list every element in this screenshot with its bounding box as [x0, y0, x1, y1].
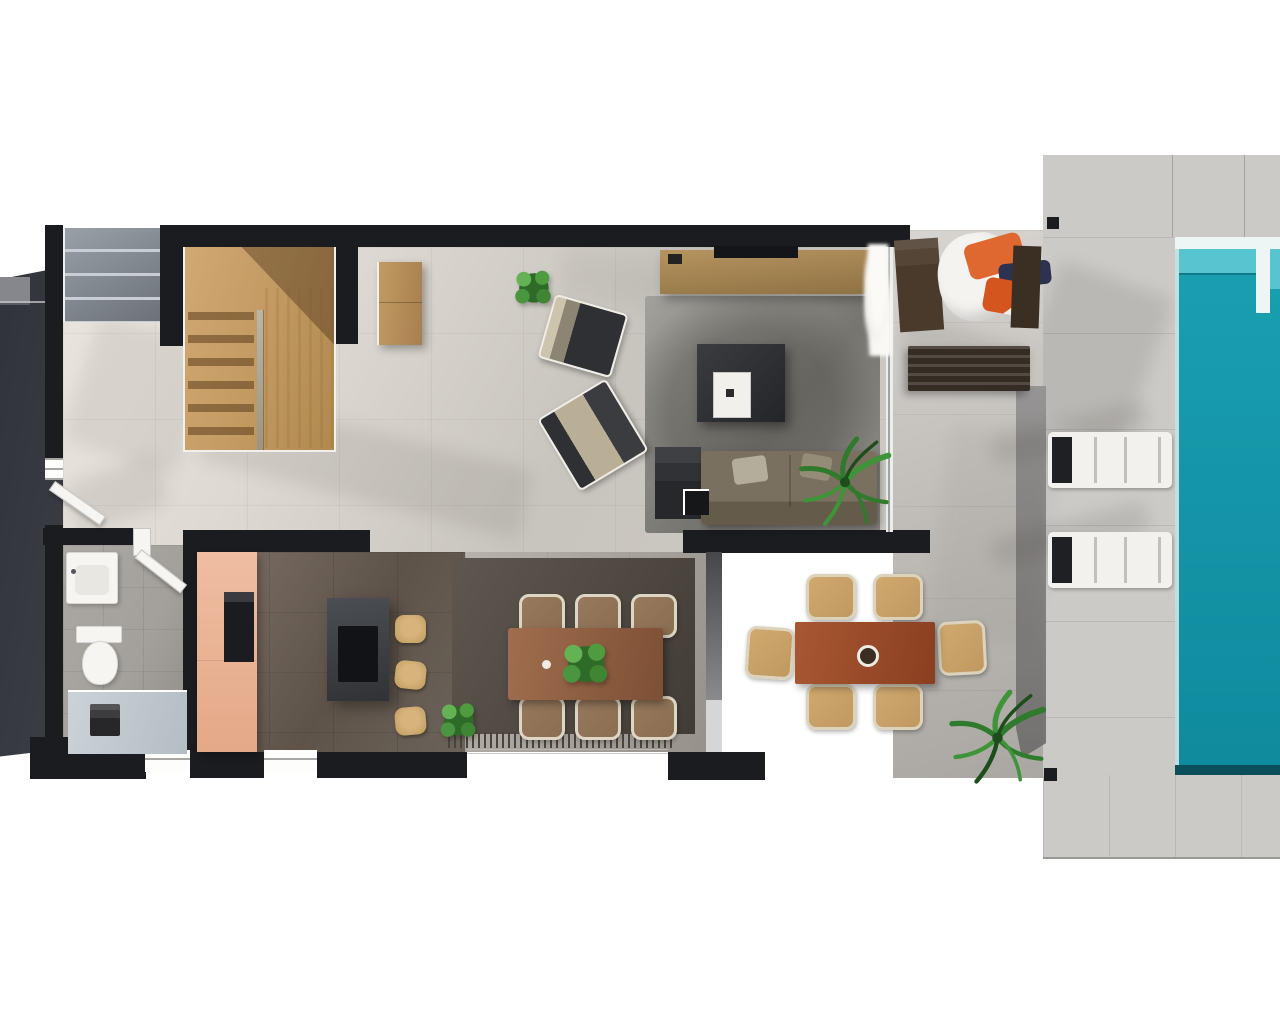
stair-divider: [257, 310, 263, 450]
console-decor: [668, 254, 682, 264]
dining-glass-wall: [706, 700, 722, 752]
outdoor-chair: [806, 574, 856, 620]
driveway-edge-line: [0, 301, 46, 303]
tray-item: [726, 389, 734, 397]
column-marker-top: [1047, 217, 1059, 229]
side-tray: [683, 489, 709, 515]
dining-chair: [631, 696, 677, 740]
lounger-seam: [1094, 537, 1097, 583]
floor-plan-render: [0, 0, 1280, 1024]
top-wall: [160, 225, 910, 247]
sofa-pillow: [731, 455, 768, 485]
bar-stool: [395, 615, 426, 643]
sliding-door-track: [467, 746, 668, 756]
cooktop: [338, 626, 378, 682]
outdoor-dining-table: [795, 622, 935, 684]
bottom-wall-2: [317, 752, 467, 778]
faucet: [71, 569, 76, 574]
pool-left-edge: [1175, 249, 1179, 775]
bottom-wall-3: [668, 752, 765, 780]
living-plant: [510, 264, 556, 310]
stair-treads: [188, 312, 254, 446]
bar-stool: [394, 659, 428, 690]
lounger-seam: [1158, 437, 1161, 483]
built-in-oven: [224, 592, 254, 662]
kitchen-window: [264, 750, 317, 772]
deck-grout-line: [1244, 155, 1245, 237]
deck-grout-line: [1172, 155, 1173, 237]
bar-stool: [394, 706, 427, 737]
dining-chair: [519, 696, 565, 740]
kitchen-top-wall: [183, 530, 370, 552]
left-wall-upper: [45, 225, 63, 458]
sun-lounger: [1048, 432, 1172, 488]
pool-waterline: [1179, 273, 1256, 275]
pool-step-notch: [1256, 237, 1270, 313]
outdoor-chair: [937, 620, 988, 676]
toilet-bowl: [82, 641, 118, 685]
outdoor-chair: [744, 625, 796, 680]
lounger-headrest: [1052, 437, 1072, 483]
table-bowl: [857, 645, 879, 667]
living-terrace-dividing-wall: [683, 530, 930, 553]
tv-console: [660, 250, 872, 294]
shower: [68, 690, 187, 754]
stair-upper-flight-grain: [265, 288, 332, 448]
left-wall-lower: [45, 525, 63, 737]
hall-bottom-wall: [43, 528, 133, 545]
pool-step-water: [1270, 249, 1280, 289]
outdoor-chair: [806, 684, 856, 730]
console-seam: [379, 302, 422, 303]
pampas-plant: [864, 244, 892, 356]
kitchen-cabinets: [197, 552, 257, 752]
daybed-frame-right: [1011, 246, 1042, 329]
lounger-headrest: [1052, 537, 1072, 583]
dining-right-wall: [706, 552, 722, 702]
table-plant-centerpiece: [556, 636, 614, 690]
outdoor-chair: [873, 574, 923, 620]
tv: [714, 246, 798, 258]
washbasin: [66, 552, 118, 604]
sun-lounger: [1048, 532, 1172, 588]
lounger-seam: [1124, 437, 1127, 483]
pool-shallow-band: [1179, 249, 1256, 273]
kitchen-island: [327, 598, 389, 701]
hall-console: [377, 262, 422, 345]
daybed-frame-left: [894, 238, 944, 333]
pool-bottom-edge: [1175, 765, 1280, 775]
table-dish: [542, 660, 551, 669]
lounger-seam: [1158, 537, 1161, 583]
coffee-table: [697, 344, 785, 422]
slatted-bench: [908, 346, 1030, 391]
dining-chair: [575, 696, 621, 740]
sofa-palm-plant: [795, 428, 895, 533]
kitchen-plant: [436, 696, 480, 744]
sofa-divider: [789, 455, 791, 507]
staircase: [183, 247, 336, 452]
pool-deck-top: [1043, 155, 1280, 238]
bottom-wall-1: [190, 752, 264, 778]
lounger-seam: [1094, 437, 1097, 483]
entry-window: [45, 458, 63, 480]
swimming-pool: [1175, 237, 1280, 775]
outdoor-chair: [873, 684, 923, 730]
entry-canopy-slats: [63, 228, 162, 322]
basin: [75, 565, 109, 595]
coffee-table-tray: [713, 372, 751, 418]
shower-drain: [90, 704, 120, 736]
lounger-seam: [1124, 537, 1127, 583]
terrace-palm-plant: [945, 682, 1050, 790]
pool-deck-bottom: [1043, 775, 1280, 859]
